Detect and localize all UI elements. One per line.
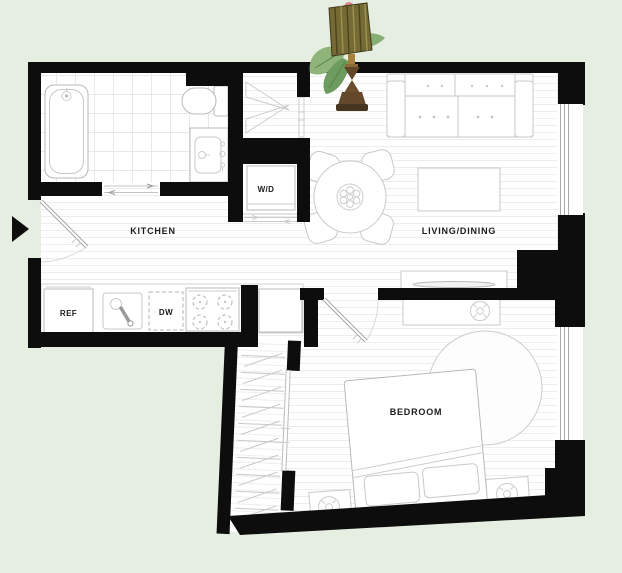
dishwasher: DW [149,292,183,330]
room-label-bedroom: BEDROOM [390,407,443,417]
window-bedroom [557,327,583,440]
washer-dryer: W/D [242,162,300,224]
refrigerator: REF [44,287,93,336]
dresser [403,297,500,325]
kitchen-sink [103,293,142,329]
coffee-table [418,168,500,211]
floor-plan: W/D REF DW [0,0,622,573]
counter-section [259,289,302,332]
dining-table [302,148,396,247]
room-label-living-dining: LIVING/DINING [422,226,496,236]
toilet [182,86,228,116]
sofa [387,74,533,137]
washer-dryer-label: W/D [258,185,275,194]
bed [344,369,488,513]
vanity-sink [190,128,228,182]
room-label-kitchen: KITCHEN [130,226,176,236]
dishwasher-label: DW [159,308,173,317]
tv-console [401,271,507,289]
tv [413,282,495,288]
window-living [557,104,583,215]
refrigerator-label: REF [60,309,77,318]
stove [186,288,239,331]
floor-plan-svg: W/D REF DW [0,0,622,573]
bathtub [45,85,88,178]
